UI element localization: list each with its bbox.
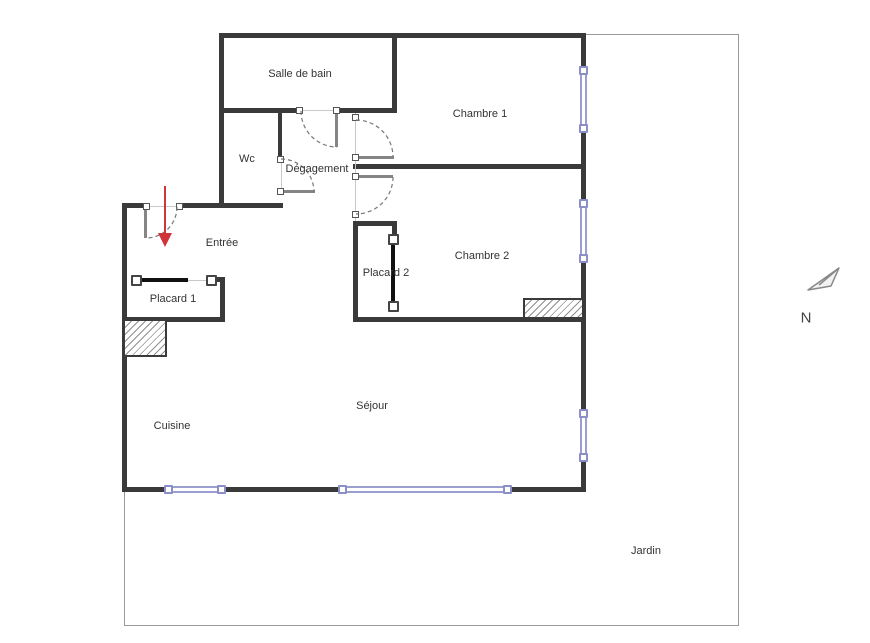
garden-boundary-left xyxy=(124,492,125,625)
door-arc-chambre1 xyxy=(356,120,393,157)
hatch-box-chambre2 xyxy=(523,298,584,319)
closet-door-handle xyxy=(206,275,217,286)
room-label-wc: Wc xyxy=(239,153,255,165)
window-handle xyxy=(579,254,588,263)
window-handle xyxy=(579,199,588,208)
wall-chambre-divider xyxy=(353,164,586,169)
north-icon xyxy=(808,268,839,290)
window-chambre2 xyxy=(580,203,587,258)
closet-door-handle xyxy=(131,275,142,286)
door-leaf-wc xyxy=(282,190,315,193)
wall-bottom-2 xyxy=(221,487,342,492)
room-label-chambre1: Chambre 1 xyxy=(453,108,507,120)
window-sejour-east xyxy=(580,413,587,457)
window-handle xyxy=(579,409,588,418)
wall-sdb-bottom-left xyxy=(219,108,299,113)
wall-sdb-east xyxy=(392,33,397,113)
window-chambre1 xyxy=(580,70,587,128)
room-label-jardin: Jardin xyxy=(631,545,661,557)
room-label-sejour: Séjour xyxy=(356,400,388,412)
door-hinge xyxy=(352,211,359,218)
floor-plan: Salle de bain Wc Dégagement Chambre 1 En… xyxy=(0,0,870,643)
wall-wc-east xyxy=(278,108,282,160)
door-leaf-sdb xyxy=(335,111,338,147)
wall-top xyxy=(219,33,586,38)
door-arc-entree xyxy=(146,207,177,238)
wall-entree-top-right xyxy=(178,203,283,208)
door-leaf-chambre1 xyxy=(357,156,394,159)
door-hinge xyxy=(277,156,284,163)
window-handle xyxy=(579,66,588,75)
north-label: N xyxy=(801,310,812,327)
room-label-cuisine: Cuisine xyxy=(154,420,191,432)
window-handle xyxy=(503,485,512,494)
entry-arrow-icon xyxy=(158,186,172,247)
room-label-entree: Entrée xyxy=(206,237,238,249)
track-line-placard1 xyxy=(188,280,206,281)
opening-line-sdb xyxy=(299,110,333,111)
door-hinge xyxy=(333,107,340,114)
window-handle xyxy=(579,453,588,462)
door-hinge xyxy=(352,173,359,180)
opening-line-degagement xyxy=(355,113,356,221)
room-label-salle-de-bain: Salle de bain xyxy=(268,68,332,80)
door-arc-sdb xyxy=(301,111,337,147)
door-leaf-chambre2 xyxy=(357,175,393,178)
wall-sdb-bottom-right xyxy=(333,108,397,113)
window-handle xyxy=(338,485,347,494)
room-label-placard2: Placard 2 xyxy=(363,267,409,279)
window-handle xyxy=(579,124,588,133)
room-label-chambre2: Chambre 2 xyxy=(455,250,509,262)
window-cuisine xyxy=(168,486,221,493)
wall-right-3 xyxy=(581,258,586,413)
room-label-degagement: Dégagement xyxy=(286,163,349,175)
door-hinge xyxy=(143,203,150,210)
wall-sdb-west xyxy=(219,33,224,208)
garden-boundary-bottom xyxy=(124,625,739,626)
closet-door-handle xyxy=(388,301,399,312)
wall-right-2 xyxy=(581,128,586,203)
window-handle xyxy=(217,485,226,494)
wall-right-1 xyxy=(581,33,586,70)
closet-door-handle xyxy=(388,234,399,245)
door-hinge xyxy=(277,188,284,195)
sliding-door-placard1 xyxy=(142,278,188,282)
door-hinge xyxy=(352,154,359,161)
wall-placard2-left xyxy=(353,221,358,322)
hatch-box-cuisine xyxy=(123,319,167,357)
wall-bottom-3 xyxy=(507,487,586,492)
door-leaf-entree xyxy=(144,207,147,238)
window-handle xyxy=(164,485,173,494)
door-hinge xyxy=(352,114,359,121)
door-hinge xyxy=(176,203,183,210)
door-hinge xyxy=(296,107,303,114)
garden-boundary-top xyxy=(586,34,738,35)
wall-placard1-right xyxy=(220,277,225,322)
window-sejour-south xyxy=(342,486,507,493)
wall-bottom-1 xyxy=(122,487,168,492)
room-label-placard1: Placard 1 xyxy=(150,293,196,305)
garden-boundary-right xyxy=(738,34,739,625)
wall-placard2-top xyxy=(353,221,397,226)
door-arc-chambre2 xyxy=(356,177,393,214)
opening-line-entree xyxy=(147,206,178,207)
